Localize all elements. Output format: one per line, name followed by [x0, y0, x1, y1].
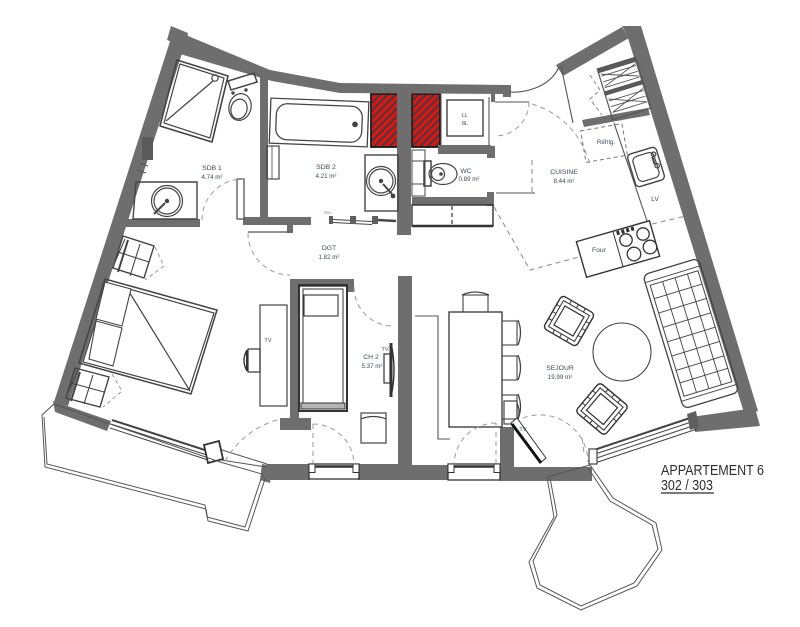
svg-text:SDB 2: SDB 2 [316, 164, 336, 171]
svg-text:DGT: DGT [322, 245, 336, 252]
svg-text:8L: 8L [462, 121, 468, 127]
svg-text:Niv.: Niv. [324, 210, 331, 215]
svg-text:CUISINE: CUISINE [550, 169, 578, 176]
svg-text:LV: LV [651, 196, 659, 203]
svg-text:Réfrig.: Réfrig. [597, 139, 616, 146]
svg-text:WC: WC [460, 168, 471, 175]
svg-text:TV: TV [381, 347, 388, 353]
svg-text:4.21 m²: 4.21 m² [316, 173, 337, 180]
svg-text:TV: TV [519, 427, 526, 433]
svg-text:APPARTEMENT 6: APPARTEMENT 6 [661, 463, 764, 479]
svg-text:Four: Four [592, 247, 607, 254]
svg-text:TV: TV [264, 338, 271, 344]
svg-text:8.44 m²: 8.44 m² [554, 178, 575, 185]
svg-text:SEJOUR: SEJOUR [546, 365, 574, 372]
svg-text:19.99 m²: 19.99 m² [548, 374, 572, 381]
svg-text:SDB 1: SDB 1 [202, 165, 222, 172]
svg-text:5.37 m²: 5.37 m² [362, 363, 383, 370]
svg-text:0.89 m²: 0.89 m² [459, 176, 480, 183]
svg-text:4.74 m²: 4.74 m² [202, 174, 223, 181]
svg-text:LL: LL [462, 113, 468, 119]
svg-text:302 / 303: 302 / 303 [661, 478, 713, 494]
svg-text:1.82 m²: 1.82 m² [319, 254, 340, 261]
svg-text:CH 2: CH 2 [363, 354, 379, 361]
